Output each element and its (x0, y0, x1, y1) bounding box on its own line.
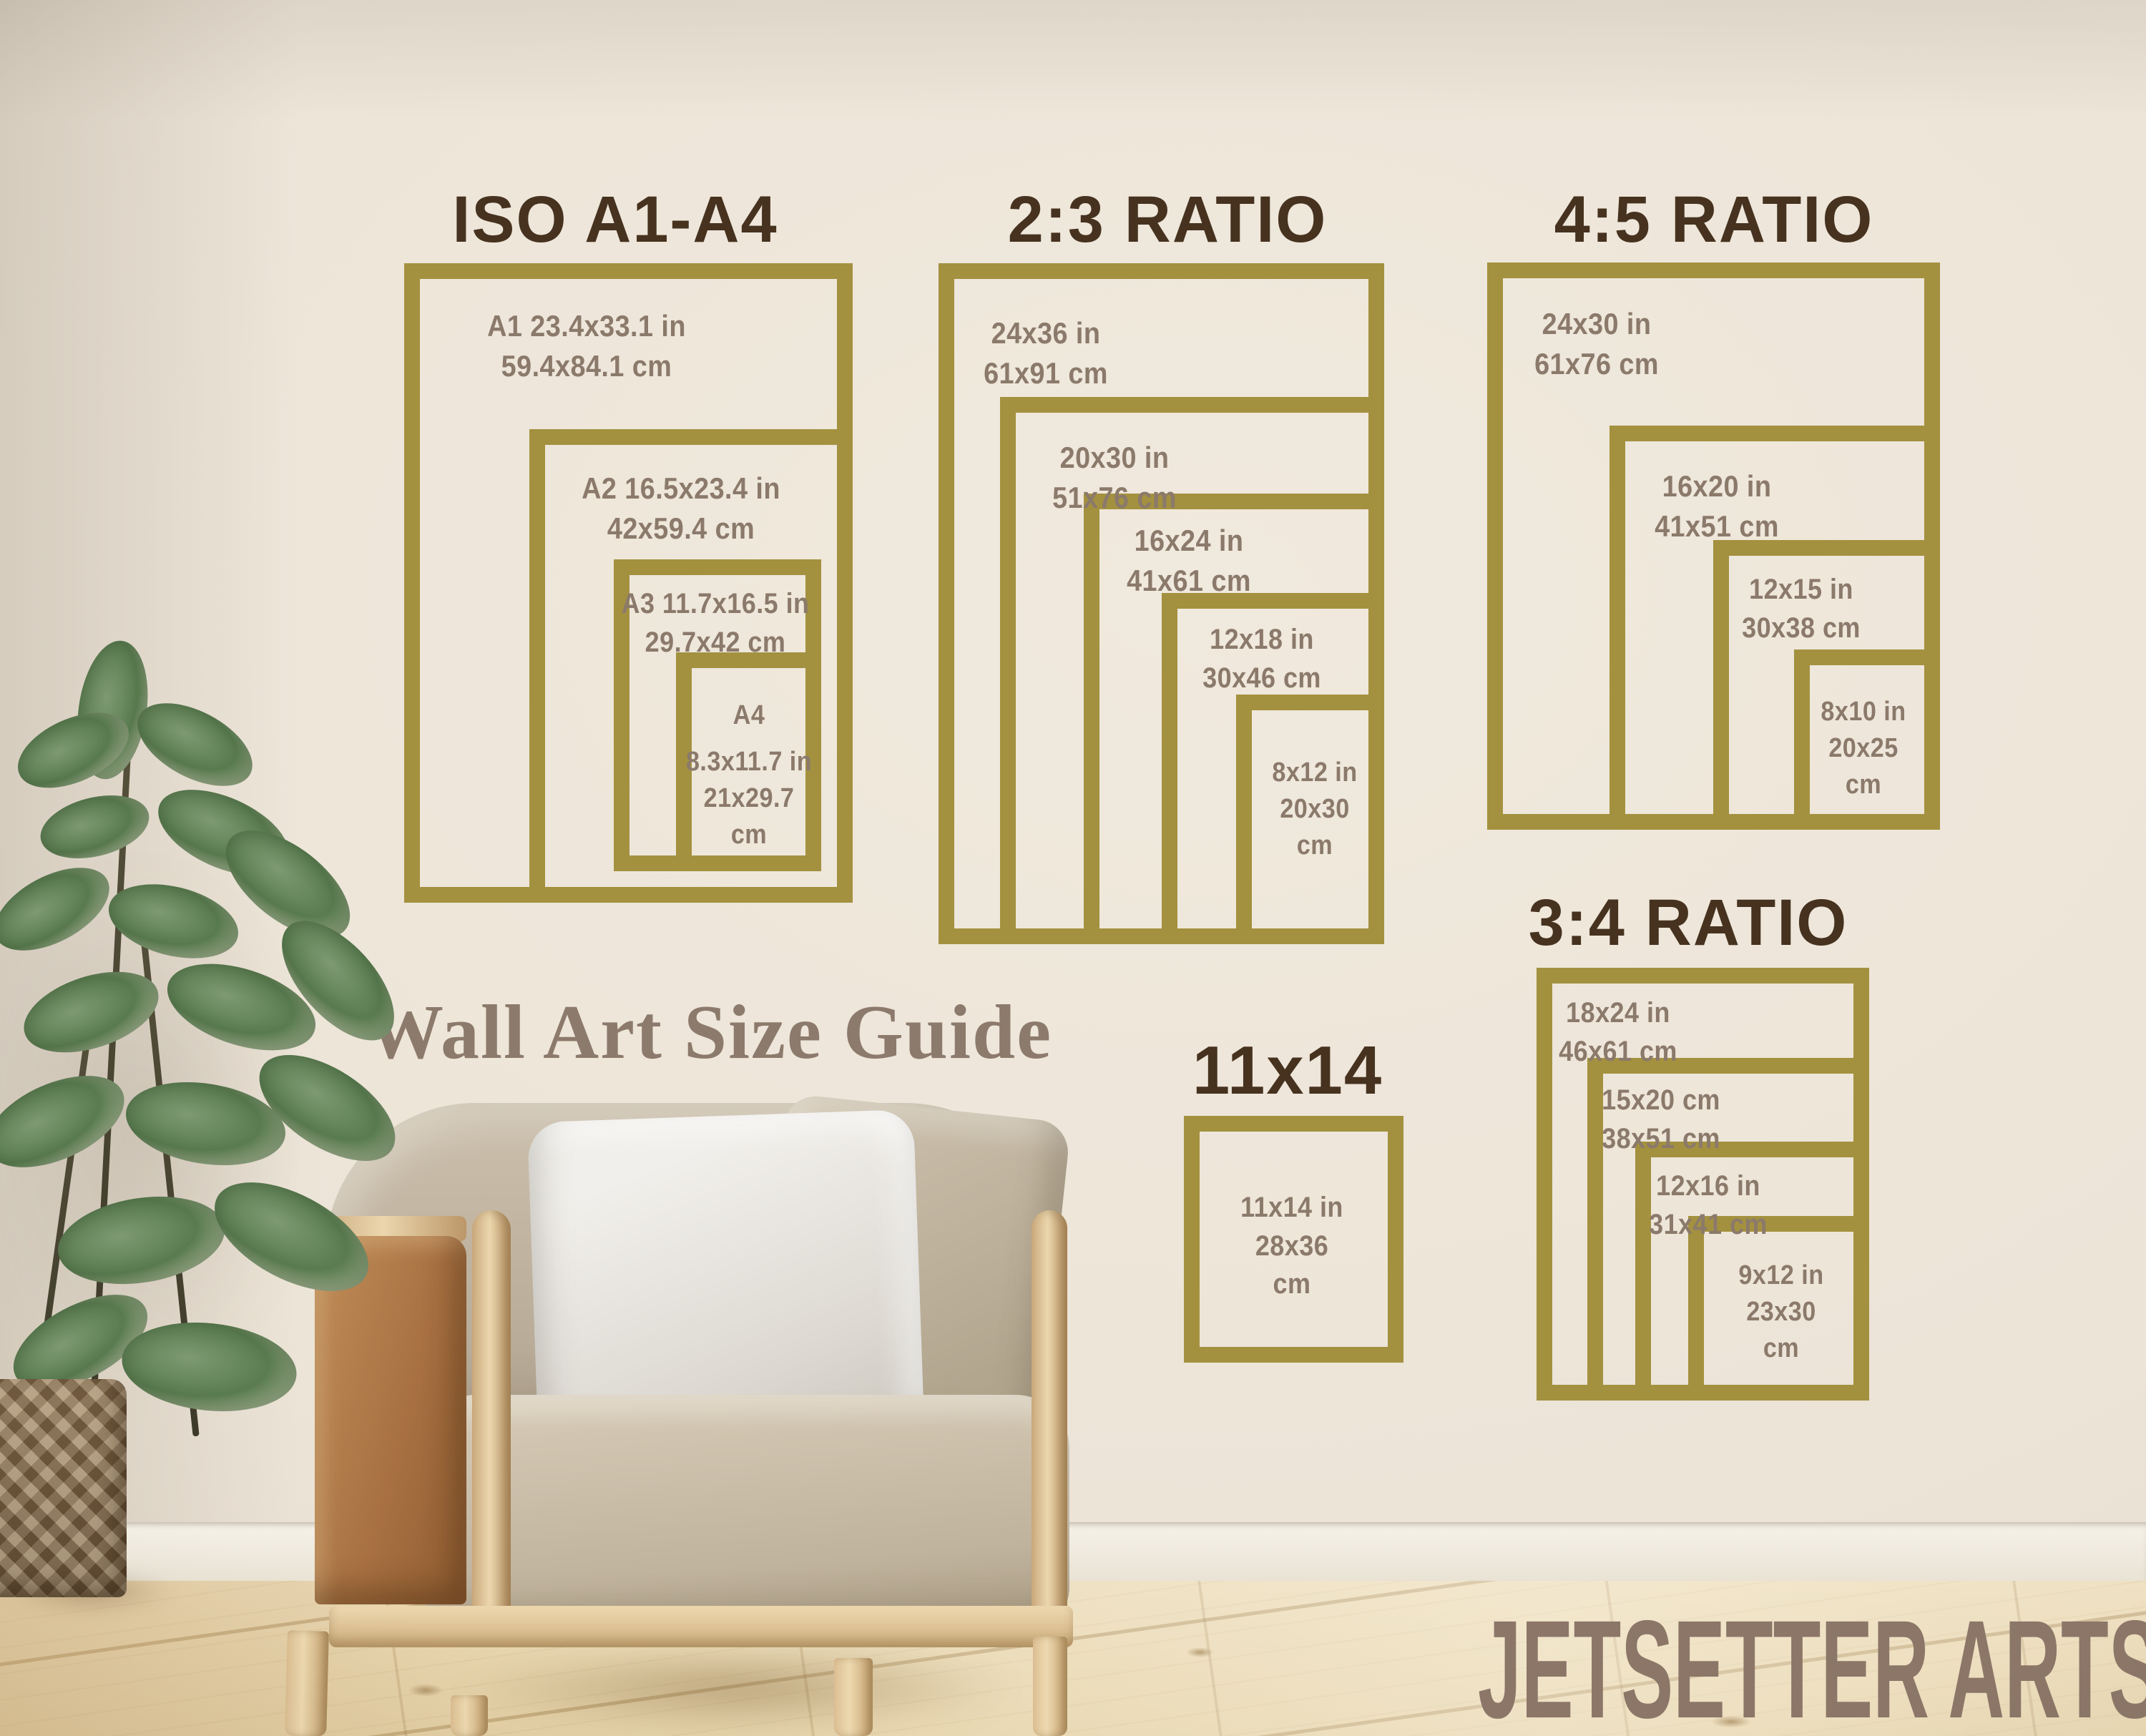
size-line: A3 11.7x16.5 in (622, 585, 810, 624)
size-label-20x30: 20x30 in 51x76 cm (1052, 438, 1177, 519)
size-line: A4 (686, 697, 812, 734)
size-label-24x30: 24x30 in 61x76 cm (1534, 304, 1659, 385)
size-label-12x18: 12x18 in 30x46 cm (1202, 621, 1321, 697)
section-title-3-4: 3:4 RATIO (1529, 886, 1848, 961)
size-label-11x14: 11x14 in 28x36 cm (1240, 1189, 1343, 1304)
size-label-12x15: 12x15 in 30x38 cm (1742, 571, 1861, 647)
size-line: 8x12 in (1272, 755, 1357, 791)
section-title-iso: ISO A1-A4 (452, 182, 778, 258)
chair-leather-pocket (315, 1236, 466, 1604)
size-line: 16x24 in (1127, 521, 1251, 561)
size-line: 12x15 in (1742, 571, 1861, 609)
section-title-2-3: 2:3 RATIO (1008, 182, 1328, 258)
size-line: 9x12 in (1738, 1257, 1823, 1294)
size-line: 61x76 cm (1534, 344, 1659, 384)
size-line: cm (1738, 1330, 1823, 1367)
size-line: 24x36 in (984, 313, 1108, 353)
size-line: 8.3x11.7 in (686, 744, 812, 780)
size-line: 11x14 in (1240, 1189, 1343, 1227)
chair-rear-right-leg (1033, 1637, 1067, 1736)
wicker-basket (0, 1379, 127, 1597)
section-title-11x14: 11x14 (1192, 1031, 1383, 1110)
size-label-9x12: 9x12 in 23x30 cm (1738, 1257, 1823, 1367)
size-label-a4: A4 8.3x11.7 in 21x29.7 cm (686, 697, 812, 853)
size-line: 20x30 (1272, 791, 1357, 828)
chair-seat-rail (329, 1606, 1073, 1647)
guide-title: Wall Art Size Guide (366, 989, 1052, 1077)
size-line: cm (686, 817, 812, 853)
size-line: 15x20 cm (1602, 1082, 1720, 1120)
size-line: 46x61 cm (1559, 1033, 1677, 1071)
size-label-a2: A2 16.5x23.4 in 42x59.4 cm (582, 469, 780, 549)
size-line: 24x30 in (1534, 304, 1659, 344)
size-line: 38x51 cm (1602, 1120, 1720, 1159)
size-line: A1 23.4x33.1 in (487, 306, 686, 346)
chair-front-left-leg (285, 1630, 329, 1736)
size-line: 18x24 in (1559, 994, 1677, 1033)
size-label-18x24: 18x24 in 46x61 cm (1559, 994, 1677, 1071)
size-line: 20x25 (1821, 730, 1906, 767)
size-line: 28x36 (1240, 1227, 1343, 1266)
size-label-16x20: 16x20 in 41x51 cm (1655, 466, 1779, 547)
size-line: 21x29.7 (686, 780, 812, 817)
size-label-8x10: 8x10 in 20x25 cm (1821, 694, 1906, 803)
size-line: cm (1272, 828, 1357, 864)
size-line: 30x38 cm (1742, 609, 1861, 648)
size-line: 12x16 in (1649, 1167, 1768, 1206)
chair-rear-left-leg (451, 1695, 488, 1736)
floor-knot (1180, 1645, 1220, 1659)
size-line: 51x76 cm (1052, 478, 1177, 518)
size-line: 61x91 cm (984, 353, 1108, 393)
size-line: 12x18 in (1202, 621, 1321, 659)
size-line: 20x30 in (1052, 438, 1177, 478)
size-label-8x12: 8x12 in 20x30 cm (1272, 755, 1357, 864)
size-label-a1: A1 23.4x33.1 in 59.4x84.1 cm (487, 306, 686, 387)
size-line: A2 16.5x23.4 in (582, 469, 780, 509)
size-line: 29.7x42 cm (622, 624, 810, 662)
size-line: 8x10 in (1821, 694, 1906, 730)
chair-seat-cushion (422, 1395, 1069, 1627)
size-line: 16x20 in (1655, 466, 1779, 506)
brand-watermark: JETSETTER ARTS (1478, 1589, 2146, 1736)
size-line: cm (1240, 1265, 1343, 1304)
size-line: 41x61 cm (1127, 561, 1251, 601)
size-label-24x36: 24x36 in 61x91 cm (984, 313, 1108, 394)
size-line: 23x30 (1738, 1294, 1823, 1330)
size-line: 30x46 cm (1202, 659, 1321, 698)
size-line: 42x59.4 cm (582, 509, 780, 549)
size-label-16x24: 16x24 in 41x61 cm (1127, 521, 1251, 602)
size-line: 31x41 cm (1649, 1206, 1768, 1245)
section-title-4-5: 4:5 RATIO (1554, 182, 1874, 258)
chair-front-right-leg (834, 1658, 873, 1736)
chair-left-armrest-post (472, 1210, 511, 1614)
size-label-a3: A3 11.7x16.5 in 29.7x42 cm (622, 585, 810, 662)
chair-right-armrest-post (1032, 1210, 1067, 1639)
size-line: cm (1821, 767, 1906, 803)
size-label-12x16: 12x16 in 31x41 cm (1649, 1167, 1768, 1244)
size-label-15x20: 15x20 cm 38x51 cm (1602, 1082, 1720, 1158)
size-line: 59.4x84.1 cm (487, 346, 686, 386)
size-line: 41x51 cm (1655, 506, 1779, 546)
wall-art-size-guide-scene: ISO A1-A4 A1 23.4x33.1 in 59.4x84.1 cm A… (0, 0, 2146, 1736)
